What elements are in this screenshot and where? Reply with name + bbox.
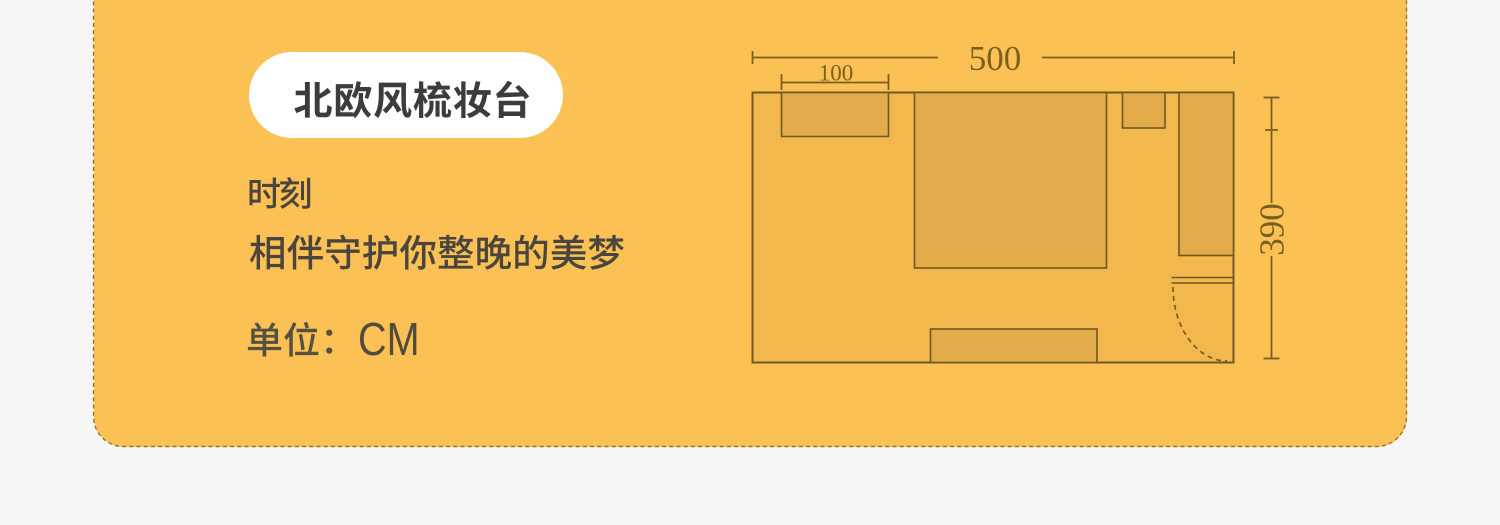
svg-text:100: 100: [819, 61, 854, 86]
svg-text:500: 500: [969, 39, 1022, 78]
svg-text:390: 390: [1253, 203, 1292, 256]
